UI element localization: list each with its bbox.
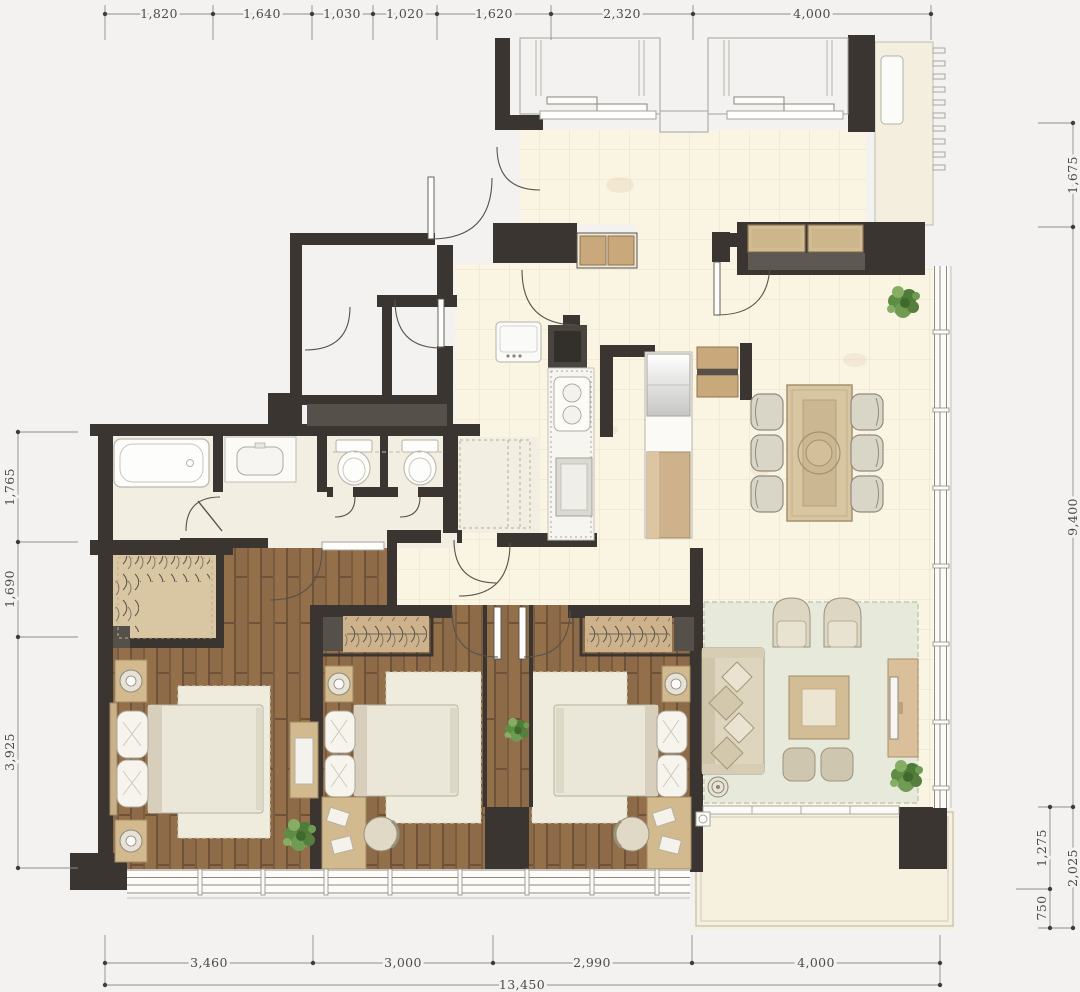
right-window-wall: [933, 266, 951, 808]
bed: [554, 705, 687, 797]
dim-label: 4,000: [793, 6, 831, 21]
service-inner-door-swing: [305, 307, 350, 350]
shoe-cabinet: [577, 233, 637, 268]
dim-label: 1,675: [1065, 156, 1080, 194]
ottoman-2: [821, 748, 853, 781]
pillow: [325, 755, 355, 797]
dim-left: 1,765 1,690 3,925: [2, 430, 78, 870]
service-door-leaf: [438, 299, 444, 347]
pillow: [657, 755, 687, 797]
lamp-icon: [328, 673, 350, 695]
louver-fins: [933, 48, 945, 170]
dim-label: 3,925: [2, 733, 17, 771]
pillow: [657, 711, 687, 753]
desk: [322, 797, 366, 869]
dim-label: 9,400: [1065, 498, 1080, 536]
desk-chair: [615, 817, 649, 851]
lamp-icon: [665, 673, 687, 695]
dining-table: [787, 385, 852, 521]
floor-plan-sheet: 1,820 1,640 1,030 1,020 1,620 2,320 4,00…: [0, 0, 1080, 992]
dim-right: 1,675 9,400 2,025 1,275 750: [1016, 121, 1080, 930]
master-door-leaf: [322, 542, 384, 550]
balcony-drain: [696, 812, 710, 826]
armchair-1: [773, 598, 810, 647]
dim-label: 1,275: [1034, 829, 1049, 867]
elevator-2: [708, 38, 848, 119]
armchair-2: [824, 598, 861, 647]
toilet-1: [336, 440, 372, 485]
dim-label: 4,000: [797, 955, 835, 970]
dim-label: 1,020: [386, 6, 424, 21]
tall-appliance-inner: [554, 331, 581, 362]
dim-label: 2,320: [603, 6, 641, 21]
toilet-2: [402, 440, 438, 485]
vestibule-door-swing: [431, 178, 492, 239]
dim-label: 3,000: [384, 955, 422, 970]
floor-plan-svg: 1,820 1,640 1,030 1,020 1,620 2,320 4,00…: [0, 0, 1080, 992]
elevator-door: [547, 97, 597, 104]
dim-label: 1,030: [323, 6, 361, 21]
lamp-icon: [120, 830, 142, 852]
service-door-swing: [395, 300, 441, 348]
side-table: [708, 777, 728, 797]
dim-label: 750: [1034, 895, 1049, 920]
dim-label: 2,025: [1065, 849, 1080, 887]
kitchen-island: [645, 352, 692, 538]
bed: [325, 705, 458, 797]
desk-chair: [364, 817, 398, 851]
washing-machine: [496, 322, 541, 362]
balcony-sliding-door: [703, 806, 899, 814]
dim-label: 1,690: [2, 570, 17, 608]
tv-console: [888, 659, 918, 757]
elevator-door: [597, 104, 647, 111]
pillow: [325, 711, 355, 753]
coffee-table: [789, 676, 849, 739]
dim-top: 1,820 1,640 1,030 1,020 1,620 2,320 4,00…: [103, 5, 933, 40]
sideboard: [697, 347, 738, 397]
bedroom-corridor-floor: [397, 548, 690, 608]
headboard: [110, 703, 117, 815]
bedroom3-door-leaf: [519, 607, 526, 659]
dim-label: 1,820: [140, 6, 178, 21]
pantry-floor: [455, 437, 540, 533]
dim-label-total: 13,450: [499, 977, 545, 992]
bottom-window-wall: [127, 869, 690, 898]
vanity-sink: [225, 437, 296, 482]
elevator-lobby-floor: [520, 130, 866, 225]
elevator-1: [520, 38, 660, 119]
bedroom2-door-leaf: [494, 607, 501, 659]
bathtub: [114, 439, 209, 487]
dining-door-leaf: [714, 262, 720, 315]
vestibule-door-leaf: [428, 177, 434, 239]
dim-label: 1,640: [243, 6, 281, 21]
ottoman-1: [783, 748, 815, 781]
kitchen-counter: [548, 368, 594, 540]
bedroom-bench: [290, 722, 318, 798]
ac-unit: [881, 56, 903, 124]
tv-screen: [890, 677, 898, 739]
dim-bottom: 3,460 3,000 2,990 4,000 13,450: [103, 935, 942, 992]
dim-label: 1,765: [2, 468, 17, 506]
dim-label: 1,620: [475, 6, 513, 21]
dim-label: 2,990: [573, 955, 611, 970]
elevator-pier: [660, 111, 708, 132]
elevators: [520, 38, 848, 132]
sofa: [702, 648, 764, 774]
elevator-door: [784, 104, 834, 111]
lamp-icon: [120, 670, 142, 692]
elevator-door: [734, 97, 784, 104]
desk: [647, 797, 691, 869]
dim-label: 3,460: [190, 955, 228, 970]
